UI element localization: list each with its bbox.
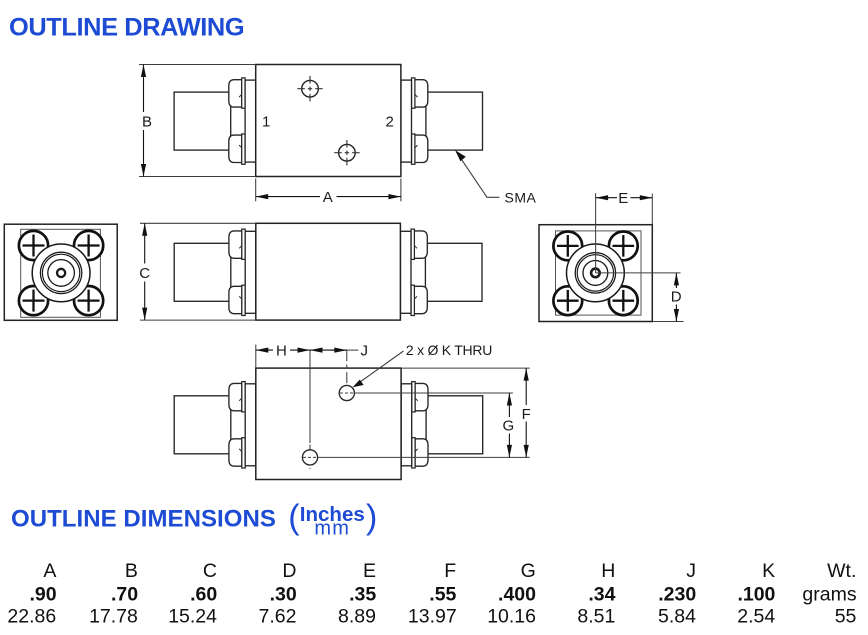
svg-text:J: J (361, 343, 369, 360)
svg-text:F: F (522, 406, 531, 423)
svg-text:OUTLINE DRAWING: OUTLINE DRAWING (9, 14, 244, 42)
svg-text:SMA: SMA (505, 190, 537, 206)
svg-text:K: K (762, 560, 775, 582)
svg-text:B: B (142, 114, 152, 131)
svg-text:C: C (203, 560, 217, 582)
svg-text:10.16: 10.16 (487, 606, 536, 628)
svg-text:F: F (444, 560, 456, 582)
svg-text:15.24: 15.24 (168, 606, 217, 628)
svg-text:J: J (686, 560, 696, 582)
svg-text:H: H (601, 560, 615, 582)
svg-text:mm: mm (314, 518, 350, 540)
svg-text:G: G (521, 560, 536, 582)
svg-text:.230: .230 (658, 583, 696, 605)
svg-text:OUTLINE DIMENSIONS: OUTLINE DIMENSIONS (11, 505, 276, 532)
svg-text:.70: .70 (111, 583, 138, 605)
svg-text:C: C (139, 265, 150, 282)
svg-text:Wt.: Wt. (827, 560, 856, 582)
svg-text:.90: .90 (29, 583, 56, 605)
svg-text:): ) (366, 498, 377, 536)
svg-text:2 x Ø K THRU: 2 x Ø K THRU (406, 342, 492, 358)
svg-text:E: E (363, 560, 376, 582)
svg-text:5.84: 5.84 (658, 606, 696, 628)
svg-text:8.51: 8.51 (577, 606, 615, 628)
svg-text:D: D (671, 289, 682, 306)
svg-text:E: E (618, 190, 628, 207)
svg-text:B: B (125, 560, 138, 582)
svg-text:22.86: 22.86 (7, 606, 56, 628)
svg-text:17.78: 17.78 (89, 606, 138, 628)
svg-text:D: D (282, 560, 296, 582)
svg-text:.34: .34 (588, 583, 615, 605)
svg-text:.55: .55 (429, 583, 456, 605)
svg-text:.35: .35 (349, 583, 376, 605)
svg-text:8.89: 8.89 (338, 606, 376, 628)
svg-text:1: 1 (262, 113, 270, 130)
svg-text:(: ( (288, 498, 300, 536)
svg-text:grams: grams (802, 583, 856, 605)
svg-text:A: A (43, 560, 56, 582)
svg-text:13.97: 13.97 (408, 606, 457, 628)
svg-text:2.54: 2.54 (737, 606, 775, 628)
svg-text:G: G (503, 418, 515, 435)
svg-text:.100: .100 (737, 583, 775, 605)
svg-text:.30: .30 (270, 583, 297, 605)
svg-text:7.62: 7.62 (259, 606, 297, 628)
svg-text:.400: .400 (498, 583, 536, 605)
svg-text:H: H (276, 343, 287, 360)
svg-text:.60: .60 (190, 583, 217, 605)
svg-text:55: 55 (835, 606, 857, 628)
svg-text:A: A (323, 189, 333, 206)
svg-text:2: 2 (386, 113, 394, 130)
